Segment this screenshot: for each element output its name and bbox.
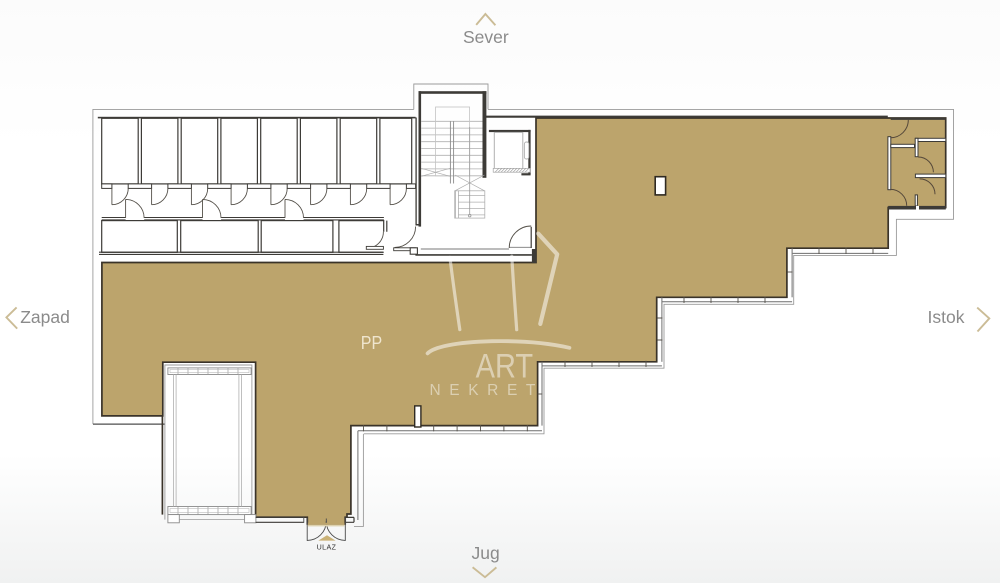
svg-text:PP: PP: [361, 332, 382, 353]
svg-text:NEKRETNINE: NEKRETNINE: [430, 382, 616, 399]
svg-text:Zapad: Zapad: [20, 307, 70, 327]
svg-text:Jug: Jug: [471, 543, 499, 563]
svg-text:ART: ART: [476, 348, 533, 386]
svg-text:ULAZ: ULAZ: [317, 543, 337, 551]
svg-text:Istok: Istok: [928, 307, 965, 327]
svg-text:Sever: Sever: [463, 27, 509, 47]
